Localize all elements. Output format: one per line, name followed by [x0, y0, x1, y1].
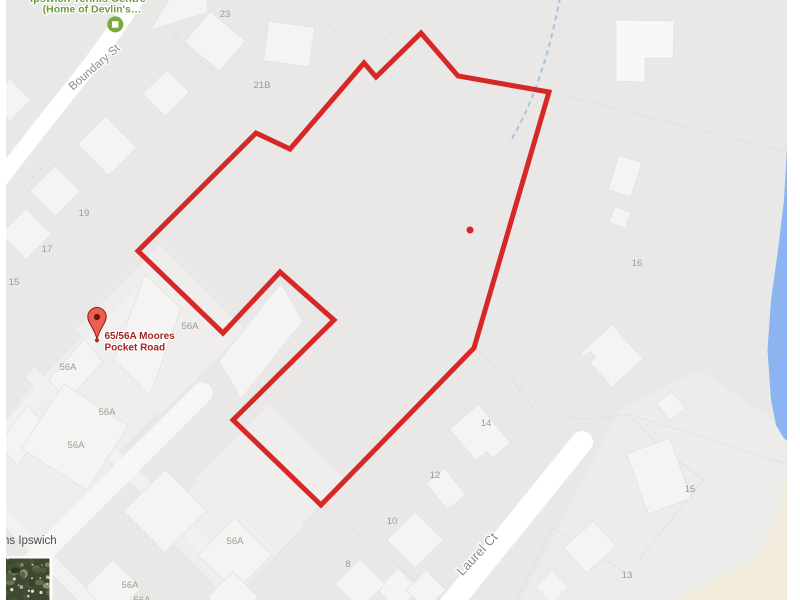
svg-text:16: 16 — [632, 258, 643, 269]
svg-text:56A: 56A — [134, 595, 152, 600]
svg-text:(Home of Devlin's…: (Home of Devlin's… — [43, 4, 142, 16]
svg-text:65/56A Moores: 65/56A Moores — [105, 331, 176, 342]
svg-text:Pocket Road: Pocket Road — [105, 343, 166, 354]
svg-text:13: 13 — [622, 570, 633, 581]
svg-text:56A: 56A — [60, 362, 78, 373]
svg-text:19: 19 — [79, 208, 90, 219]
svg-text:56A: 56A — [99, 407, 117, 418]
svg-text:21B: 21B — [254, 80, 271, 91]
svg-text:8: 8 — [345, 559, 350, 570]
svg-text:15: 15 — [685, 484, 696, 495]
svg-text:56A: 56A — [227, 536, 245, 547]
svg-text:ns Ipswich: ns Ipswich — [3, 535, 57, 547]
svg-text:10: 10 — [387, 516, 398, 527]
svg-text:17: 17 — [42, 244, 53, 255]
svg-text:15: 15 — [9, 277, 20, 288]
svg-text:14: 14 — [481, 418, 492, 429]
svg-text:12: 12 — [430, 470, 441, 481]
svg-text:23: 23 — [220, 9, 231, 20]
svg-text:56A: 56A — [68, 440, 86, 451]
svg-text:56A: 56A — [182, 321, 200, 332]
svg-text:56A: 56A — [122, 580, 140, 591]
